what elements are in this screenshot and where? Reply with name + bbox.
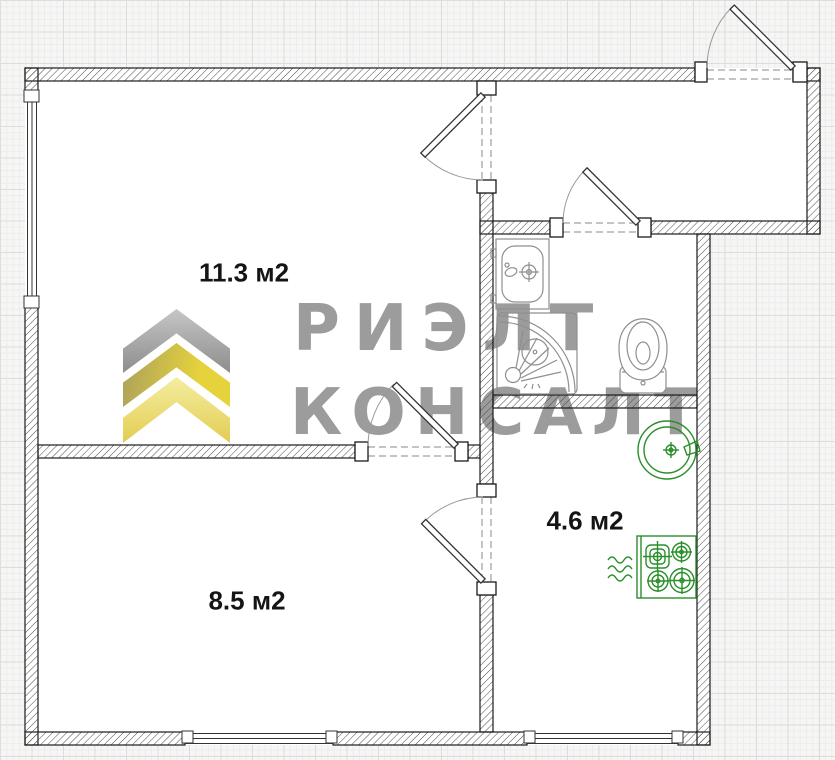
stove-icon [637, 536, 696, 598]
bathroom-fixtures [491, 239, 667, 394]
door-room1-room2 [368, 382, 458, 448]
wall-interior-vertical-low [480, 595, 493, 732]
wall-left-lower [25, 305, 38, 745]
room-2-area-label: 8.5 м2 [208, 586, 285, 617]
window-left [24, 90, 39, 308]
door-bathroom [563, 168, 640, 225]
wall-right-lower [697, 234, 710, 745]
floor-plan: РИЭЛТ КОНСАЛТ [0, 0, 835, 760]
bathroom-sink-icon [491, 239, 549, 309]
door-leaf [730, 5, 795, 70]
door-leaf [421, 519, 485, 583]
kitchen-area-label: 4.6 м2 [546, 506, 623, 537]
toilet-icon [619, 319, 667, 393]
door-entry [707, 5, 795, 70]
windows [24, 90, 683, 744]
wall-bath-kitchen-divider [493, 395, 697, 408]
shower-icon [497, 313, 577, 394]
walls [25, 68, 820, 745]
door-kitchen [421, 497, 485, 583]
kitchen-sink-icon [638, 421, 700, 479]
window-bottom-room2 [182, 731, 337, 744]
wall-top [25, 68, 695, 81]
wall-bottom-1 [25, 732, 185, 745]
wall-room-divider [38, 445, 355, 458]
window-bottom-kitchen [524, 731, 683, 744]
wall-right-upper [807, 68, 820, 234]
plan-linework [0, 0, 835, 760]
gas-supply-icon [608, 557, 632, 581]
room-1-area-label: 11.3 м2 [199, 258, 289, 289]
wall-bottom-2 [333, 732, 527, 745]
doors [368, 5, 795, 583]
door-room1-hall [421, 93, 485, 180]
wall-hall-bath-right [651, 221, 820, 234]
door-leaf [392, 382, 458, 448]
door-leaf [583, 168, 640, 225]
door-leaf [421, 93, 485, 157]
wall-interior-vertical-mid [480, 193, 493, 484]
wall-room-divider-stub [468, 445, 480, 458]
